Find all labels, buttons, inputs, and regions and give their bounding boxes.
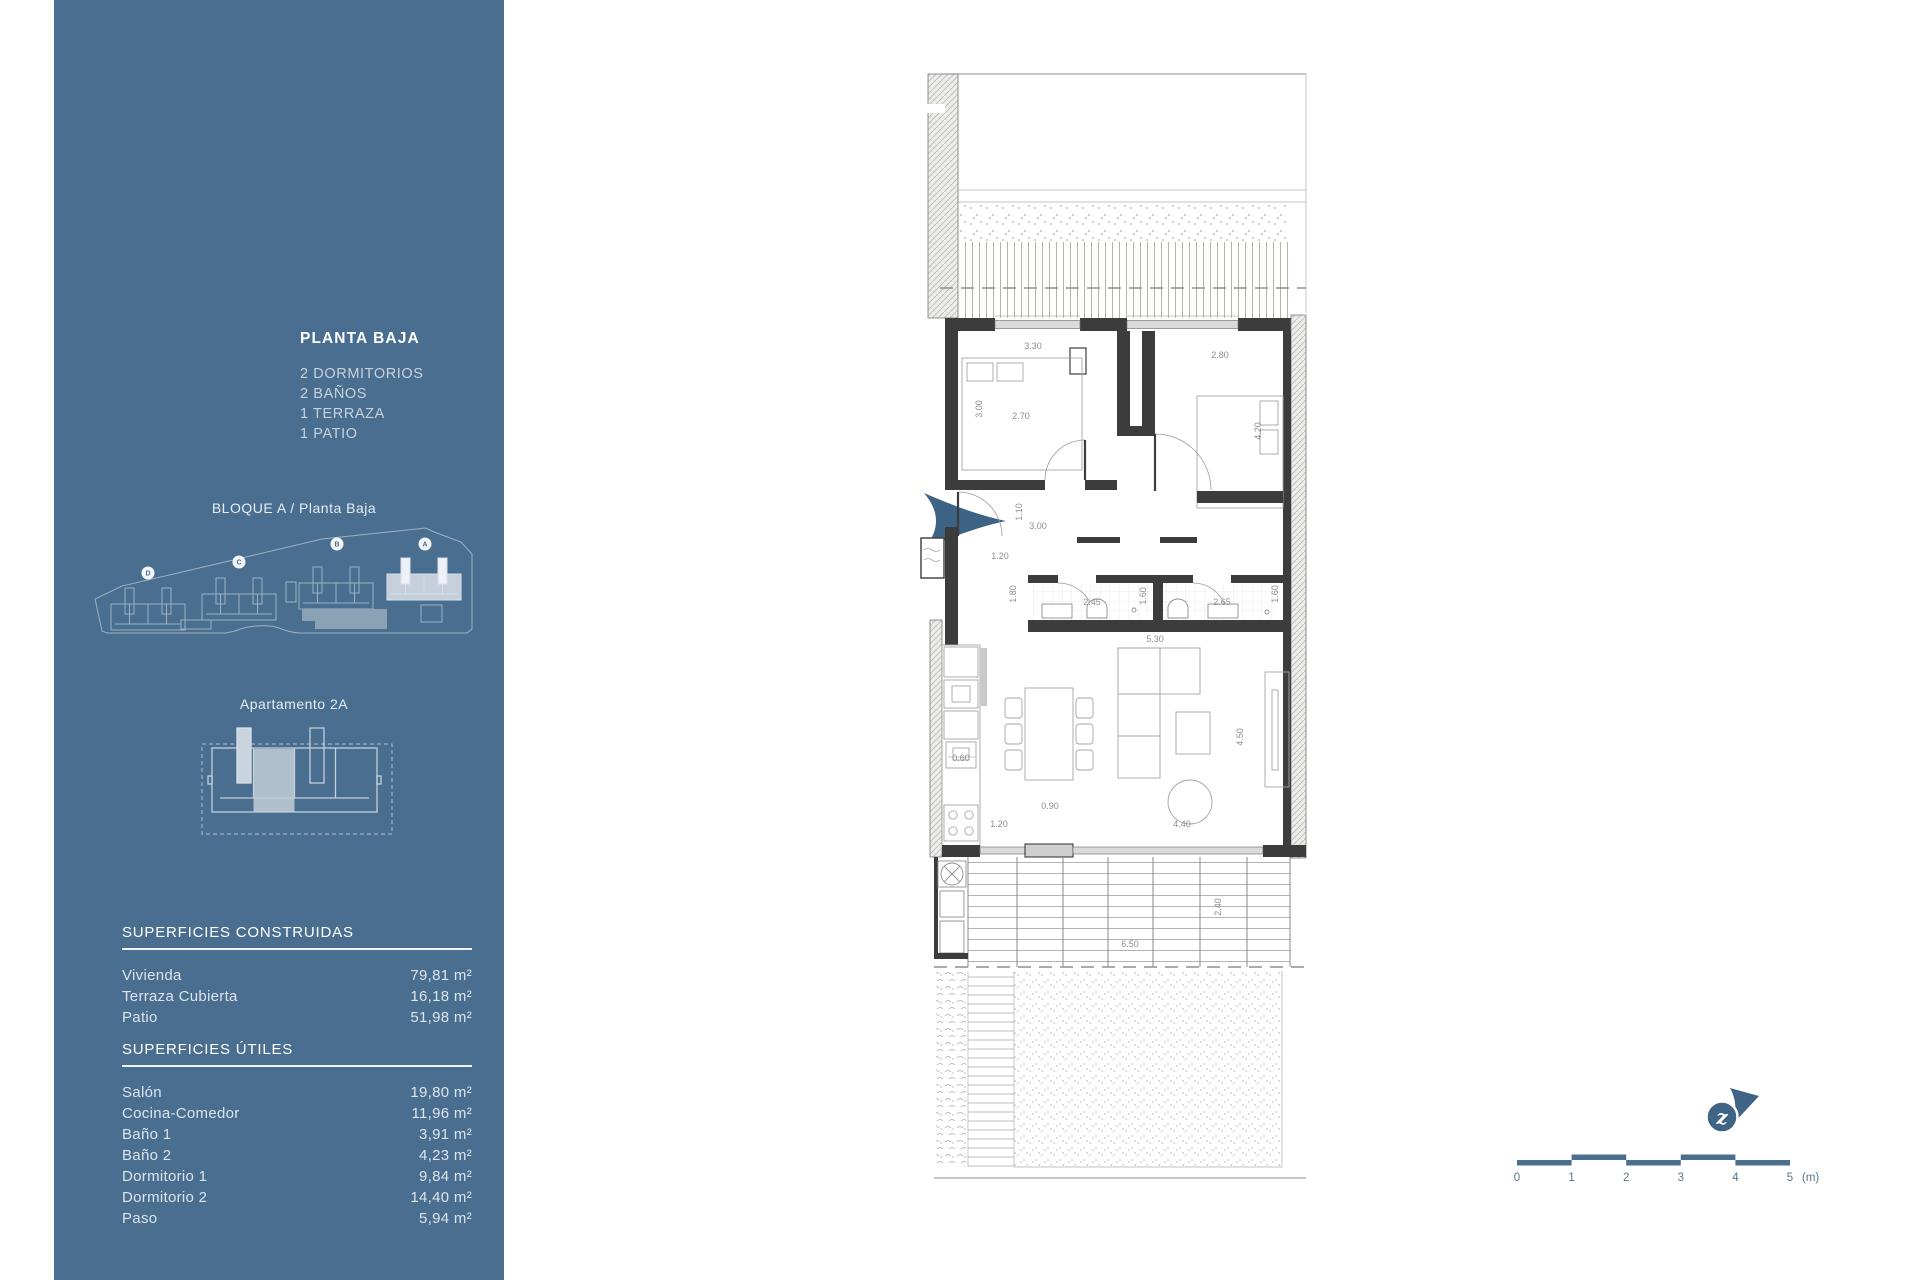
building-c-outline xyxy=(202,578,276,620)
row-label: Vivienda xyxy=(122,965,182,986)
building-b-outline xyxy=(299,567,373,609)
dimension-label: 2.40 xyxy=(1213,898,1223,916)
window xyxy=(1073,847,1263,854)
dimension-label: 3.00 xyxy=(1029,521,1047,531)
sliding-door xyxy=(1025,844,1073,857)
dining-table xyxy=(1005,688,1093,780)
row-value: 5,94 m² xyxy=(419,1208,472,1229)
pool-shape xyxy=(302,609,387,629)
dimension-label: 1.80 xyxy=(1008,585,1018,603)
dimension-label: 4.40 xyxy=(1173,819,1191,829)
dimension-label: 0.60 xyxy=(952,753,970,763)
apartment-diagram xyxy=(194,716,404,841)
row-label: Baño 1 xyxy=(122,1124,171,1145)
north-arrow-icon: z xyxy=(1697,1082,1772,1142)
row-label: Baño 2 xyxy=(122,1145,171,1166)
window xyxy=(995,321,1080,329)
building-a-highlighted xyxy=(387,558,461,600)
scale-tick: 5 xyxy=(1787,1172,1793,1184)
row-label: Patio xyxy=(122,1007,158,1028)
table-row: Salón 19,80 m² xyxy=(122,1082,472,1103)
stair-core xyxy=(310,728,324,783)
scale-tick: 0 xyxy=(1514,1172,1520,1184)
badge-letter-c: C xyxy=(236,560,241,567)
row-value: 9,84 m² xyxy=(419,1166,472,1187)
dimension-label: 1.20 xyxy=(990,819,1008,829)
storage-box xyxy=(940,891,964,917)
scale-unit: (m) xyxy=(1802,1172,1819,1184)
badge-letter-b: B xyxy=(334,542,339,549)
gravel-area xyxy=(1014,971,1282,1167)
dimension-label: 1.10 xyxy=(1014,503,1024,521)
dimension-label: 6.50 xyxy=(1121,939,1139,949)
dimension-label: 1.20 xyxy=(991,551,1009,561)
row-value: 19,80 m² xyxy=(410,1082,472,1103)
dimension-label: 2.45 xyxy=(1083,597,1101,607)
table-row: Terraza Cubierta 16,18 m² xyxy=(122,986,472,1007)
storage-box xyxy=(940,921,964,953)
scale-tick: 2 xyxy=(1623,1172,1629,1184)
feature-terrace: 1 TERRAZA xyxy=(300,404,424,424)
dimension-label: 1.60 xyxy=(1270,585,1280,603)
scale-tick: 3 xyxy=(1678,1172,1684,1184)
table-row: Patio 51,98 m² xyxy=(122,1007,472,1028)
plot-dashed-border xyxy=(202,744,392,834)
sink-cabinet xyxy=(1042,604,1072,618)
usable-areas-table: SUPERFICIES ÚTILES Salón 19,80 m² Cocina… xyxy=(122,1041,472,1229)
apartment-label: Apartamento 2A xyxy=(84,696,504,712)
row-value: 14,40 m² xyxy=(410,1187,472,1208)
row-label: Salón xyxy=(122,1082,162,1103)
planter xyxy=(921,538,944,578)
block-label: BLOQUE A / Planta Baja xyxy=(84,500,504,516)
dimension-label: 1.60 xyxy=(1138,587,1148,605)
bathrooms xyxy=(1028,537,1286,632)
dimension-label: 2.65 xyxy=(1213,597,1231,607)
table-row: Paso 5,94 m² xyxy=(122,1208,472,1229)
row-value: 4,23 m² xyxy=(419,1145,472,1166)
row-value: 3,91 m² xyxy=(419,1124,472,1145)
pergola-band xyxy=(960,242,1290,318)
site-plan-diagram: D C B A xyxy=(94,526,494,644)
feature-bedrooms: 2 DORMITORIOS xyxy=(300,364,424,384)
building-badges: D C B A xyxy=(142,538,432,580)
closet xyxy=(1070,348,1086,374)
dimension-label: 2.80 xyxy=(1211,350,1229,360)
shower-drain xyxy=(1132,608,1136,612)
usable-areas-heading: SUPERFICIES ÚTILES xyxy=(122,1041,472,1067)
north-letter: z xyxy=(1715,1105,1728,1129)
dimension-label: 3.30 xyxy=(1024,341,1042,351)
table-row: Cocina-Comedor 11,96 m² xyxy=(122,1103,472,1124)
built-areas-heading: SUPERFICIES CONSTRUIDAS xyxy=(122,924,472,950)
table-row: Baño 2 4,23 m² xyxy=(122,1145,472,1166)
table-row: Vivienda 79,81 m² xyxy=(122,965,472,986)
badge-letter-a: A xyxy=(422,542,427,549)
feature-patio: 1 PATIO xyxy=(300,424,424,444)
scale-segments xyxy=(1517,1155,1790,1166)
brochure-page: PLANTA BAJA 2 DORMITORIOS 2 BAÑOS 1 TERR… xyxy=(0,0,1920,1280)
front-garden xyxy=(925,74,1306,318)
row-label: Dormitorio 1 xyxy=(122,1166,207,1187)
exterior-wall xyxy=(945,331,958,490)
deck-strip xyxy=(968,971,1014,1167)
dimension-label: 0.90 xyxy=(1041,801,1059,811)
shower-drain xyxy=(1265,610,1269,614)
table-row: Dormitorio 2 14,40 m² xyxy=(122,1187,472,1208)
table-row: Baño 1 3,91 m² xyxy=(122,1124,472,1145)
table-row: Dormitorio 1 9,84 m² xyxy=(122,1166,472,1187)
feature-bathrooms: 2 BAÑOS xyxy=(300,384,424,404)
living-kitchen xyxy=(930,620,1306,857)
dimension-label: 4.50 xyxy=(1235,728,1245,746)
sofa-icon xyxy=(1118,648,1200,778)
floor-plan: 3.303.002.702.804.201.103.001.201.802.45… xyxy=(920,60,1310,1190)
scale-tick: 4 xyxy=(1732,1172,1739,1184)
row-value: 16,18 m² xyxy=(410,986,472,1007)
building-d-outline xyxy=(111,588,185,630)
row-value: 79,81 m² xyxy=(410,965,472,986)
dimension-label: 5.30 xyxy=(1146,634,1164,644)
site-small-structure xyxy=(286,582,296,602)
terrace xyxy=(934,857,1306,967)
sidebar: PLANTA BAJA 2 DORMITORIOS 2 BAÑOS 1 TERR… xyxy=(54,0,504,1280)
counter-return xyxy=(980,648,987,706)
floor-summary: PLANTA BAJA 2 DORMITORIOS 2 BAÑOS 1 TERR… xyxy=(300,330,424,444)
scale-bar: 0 1 2 3 4 5 (m) xyxy=(1509,1144,1839,1190)
dimension-label: 4.20 xyxy=(1253,422,1263,440)
row-label: Paso xyxy=(122,1208,157,1229)
toilet-icon xyxy=(1168,599,1188,618)
stair-core xyxy=(237,728,251,783)
window xyxy=(1127,321,1238,329)
row-label: Terraza Cubierta xyxy=(122,986,238,1007)
exterior-wall xyxy=(930,620,942,857)
dimension-label: 3.00 xyxy=(974,400,984,418)
kitchen-counter xyxy=(942,645,980,850)
coffee-table xyxy=(1176,712,1210,754)
built-areas-table: SUPERFICIES CONSTRUIDAS Vivienda 79,81 m… xyxy=(122,924,472,1028)
page-title: PLANTA BAJA xyxy=(300,330,424,348)
exterior-wall xyxy=(1291,315,1306,858)
dimension-label: 2.70 xyxy=(1012,411,1030,421)
scale-tick: 1 xyxy=(1568,1172,1574,1184)
patio xyxy=(934,971,1306,1178)
door-leaf xyxy=(1077,537,1120,543)
door-leaf xyxy=(1160,537,1197,543)
laundry-box xyxy=(938,861,966,887)
row-label: Dormitorio 2 xyxy=(122,1187,207,1208)
deck-planks xyxy=(968,857,1290,967)
row-value: 51,98 m² xyxy=(410,1007,472,1028)
window xyxy=(980,847,1025,854)
site-small-structure xyxy=(421,605,442,622)
gravel-band xyxy=(960,203,1290,242)
badge-letter-d: D xyxy=(145,571,150,578)
apartment-highlight xyxy=(254,749,295,812)
planting-strip xyxy=(936,971,966,1167)
row-label: Cocina-Comedor xyxy=(122,1103,240,1124)
row-value: 11,96 m² xyxy=(412,1103,472,1124)
round-table xyxy=(1168,780,1212,824)
